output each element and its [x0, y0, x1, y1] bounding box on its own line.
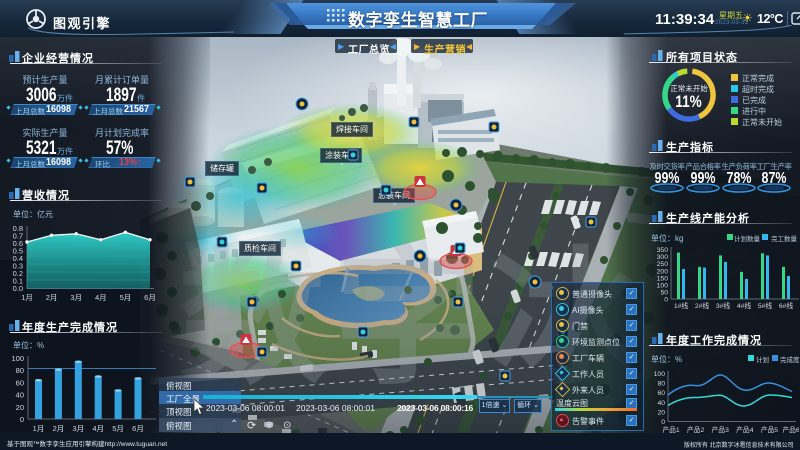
svg-text:3月: 3月	[70, 293, 82, 302]
svg-text:3月: 3月	[72, 424, 84, 433]
svg-text:2月: 2月	[53, 424, 65, 433]
svg-text:5月: 5月	[112, 424, 124, 433]
svg-text:5月: 5月	[120, 293, 132, 302]
svg-text:60: 60	[16, 378, 24, 387]
svg-text:80: 80	[16, 366, 24, 375]
svg-text:6月: 6月	[132, 424, 144, 433]
svg-text:100: 100	[11, 354, 24, 363]
svg-text:4#线: 4#线	[737, 301, 752, 310]
svg-text:6#线: 6#线	[779, 301, 794, 310]
svg-text:6月: 6月	[144, 293, 156, 302]
svg-text:1月: 1月	[21, 293, 33, 302]
svg-text:20: 20	[16, 403, 24, 412]
svg-text:0: 0	[661, 419, 665, 426]
svg-text:1月: 1月	[33, 424, 45, 433]
svg-text:40: 40	[16, 391, 24, 400]
svg-text:4月: 4月	[92, 424, 104, 433]
svg-text:4月: 4月	[95, 293, 107, 302]
svg-text:0: 0	[20, 415, 24, 424]
svg-text:2月: 2月	[46, 293, 58, 302]
svg-text:0.0: 0.0	[13, 284, 23, 293]
svg-text:5#线: 5#线	[758, 301, 773, 310]
